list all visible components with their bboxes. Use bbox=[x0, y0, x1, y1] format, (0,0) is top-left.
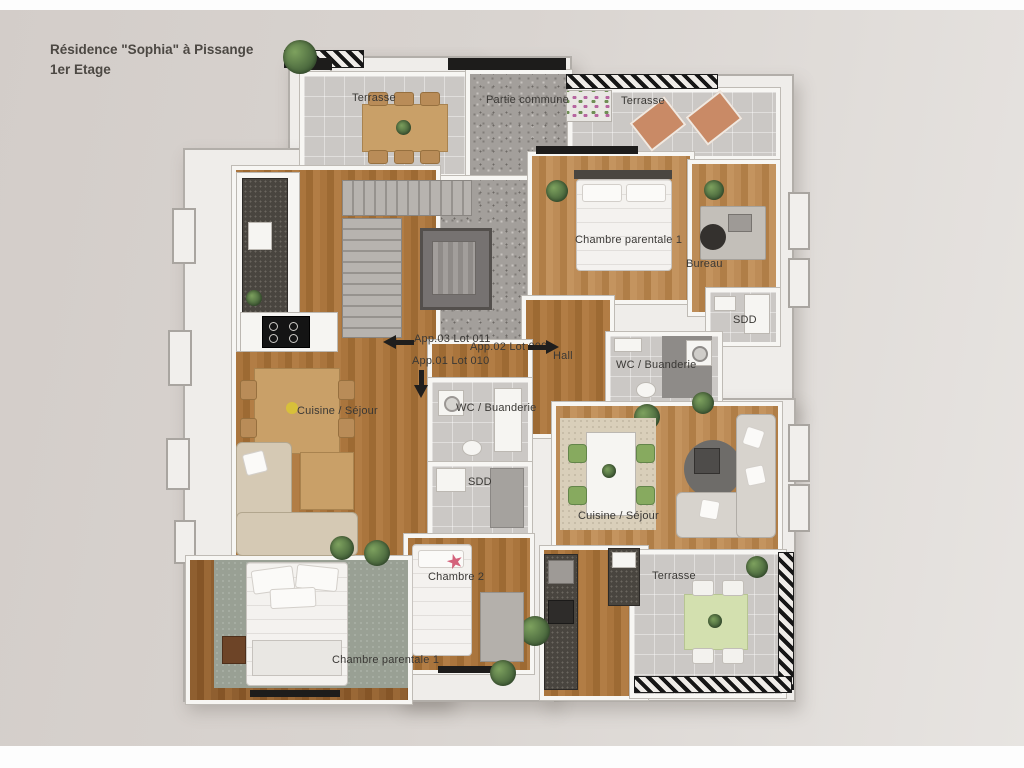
plan-title: Résidence "Sophia" à Pissange 1er Etage bbox=[50, 40, 253, 81]
plant-icon bbox=[246, 290, 262, 306]
right-arrow-icon bbox=[546, 340, 559, 354]
kitchen-sink bbox=[612, 552, 636, 568]
pillow bbox=[270, 587, 317, 609]
terrace-railing-east bbox=[778, 552, 794, 690]
window-band-south-2 bbox=[438, 666, 492, 673]
washbasin bbox=[436, 468, 466, 492]
bed-headboard bbox=[574, 170, 672, 179]
folded-blanket bbox=[252, 640, 342, 676]
label-terrasse-nw: Terrasse bbox=[352, 92, 396, 104]
floor-plan-canvas: Résidence "Sophia" à Pissange 1er Etage bbox=[0, 0, 1024, 768]
washbasin bbox=[714, 296, 736, 311]
stair-flight-lower bbox=[342, 218, 402, 338]
chair bbox=[338, 380, 355, 400]
left-arrow-icon bbox=[383, 335, 396, 349]
chair bbox=[394, 150, 414, 164]
cooktop bbox=[262, 316, 310, 348]
stair-flight-upper bbox=[342, 180, 472, 216]
label-wc-buanderie-left: WC / Buanderie bbox=[456, 402, 536, 414]
burner-icon bbox=[289, 322, 298, 331]
sink bbox=[614, 338, 642, 352]
green-chair bbox=[636, 486, 655, 505]
label-app01: App.01 Lot 010 bbox=[412, 355, 489, 367]
bay-window bbox=[172, 208, 196, 264]
label-bureau: Bureau bbox=[686, 258, 723, 270]
nightstand bbox=[222, 636, 246, 664]
office-chair bbox=[700, 224, 726, 250]
down-arrow-icon bbox=[414, 385, 428, 398]
top-white-strip bbox=[0, 0, 1024, 10]
label-sdd-center: SDD bbox=[468, 476, 492, 488]
toilet bbox=[462, 440, 482, 456]
bay-window bbox=[788, 192, 810, 250]
bay-window bbox=[168, 330, 192, 386]
flower-box bbox=[566, 90, 612, 122]
chair bbox=[420, 92, 440, 106]
plan-title-line1: Résidence "Sophia" à Pissange bbox=[50, 40, 253, 60]
label-cuisine-sejour-right: Cuisine / Séjour bbox=[578, 510, 659, 522]
window-band-top bbox=[448, 58, 566, 70]
right-arrow-icon bbox=[528, 345, 546, 350]
plant-icon bbox=[746, 556, 768, 578]
label-chambre-parentale-left: Chambre parentale 1 bbox=[332, 654, 439, 666]
kitchen-sink-left bbox=[248, 222, 272, 250]
window-band-south bbox=[250, 690, 340, 697]
burner-icon bbox=[269, 322, 278, 331]
pillow bbox=[698, 498, 720, 520]
plant-icon bbox=[364, 540, 390, 566]
laptop bbox=[728, 214, 752, 232]
burner-icon bbox=[289, 334, 298, 343]
label-terrasse-se: Terrasse bbox=[652, 570, 696, 582]
plant-icon bbox=[330, 536, 354, 560]
label-cuisine-sejour-left: Cuisine / Séjour bbox=[297, 405, 378, 417]
plan-title-line2: 1er Etage bbox=[50, 60, 253, 80]
stove-unit bbox=[694, 448, 720, 474]
elevator-shaft bbox=[420, 228, 492, 310]
label-partie-commune: Partie commune bbox=[486, 94, 569, 106]
white-chair bbox=[692, 648, 714, 664]
chair bbox=[240, 418, 257, 438]
plant-icon bbox=[546, 180, 568, 202]
label-terrasse-ne: Terrasse bbox=[621, 95, 665, 107]
chair bbox=[338, 418, 355, 438]
wardrobe bbox=[480, 592, 524, 662]
plant-icon bbox=[520, 616, 550, 646]
bay-window bbox=[788, 424, 810, 482]
label-chambre-2: Chambre 2 bbox=[428, 571, 484, 583]
white-chair bbox=[722, 580, 744, 596]
green-chair bbox=[636, 444, 655, 463]
shower-sdd bbox=[490, 468, 524, 528]
burner-icon bbox=[269, 334, 278, 343]
down-arrow-icon bbox=[419, 370, 424, 385]
bottom-white-strip bbox=[0, 746, 1024, 768]
bay-window bbox=[788, 258, 810, 308]
label-sdd-right: SDD bbox=[733, 314, 757, 326]
plant-icon bbox=[692, 392, 714, 414]
label-wc-buanderie-right: WC / Buanderie bbox=[616, 359, 696, 371]
plant-icon bbox=[708, 614, 722, 628]
green-chair bbox=[568, 444, 587, 463]
green-chair bbox=[568, 486, 587, 505]
plant-icon bbox=[602, 464, 616, 478]
left-arrow-icon bbox=[396, 340, 414, 345]
oven bbox=[548, 600, 574, 624]
pillow bbox=[626, 184, 666, 202]
bath-counter bbox=[494, 388, 522, 452]
chair bbox=[240, 380, 257, 400]
plant-icon bbox=[283, 40, 317, 74]
bay-window bbox=[788, 484, 810, 532]
white-chair bbox=[692, 580, 714, 596]
toilet bbox=[636, 382, 656, 398]
chair bbox=[368, 150, 388, 164]
terrace-railing-south bbox=[634, 676, 792, 693]
pillow bbox=[582, 184, 622, 202]
chair bbox=[394, 92, 414, 106]
label-chambre-parentale-right: Chambre parentale 1 bbox=[575, 234, 682, 246]
plant-icon bbox=[396, 120, 411, 135]
plant-icon bbox=[490, 660, 516, 686]
bay-window bbox=[166, 438, 190, 490]
plant-icon bbox=[704, 180, 724, 200]
coffee-table bbox=[300, 452, 354, 510]
balcony-railing-ne bbox=[566, 74, 718, 89]
chair bbox=[420, 150, 440, 164]
elevator-cab bbox=[432, 241, 476, 295]
white-chair bbox=[722, 648, 744, 664]
kitchen-appliance bbox=[548, 560, 574, 584]
pillow bbox=[744, 464, 767, 487]
window-band-chambre-right bbox=[536, 146, 638, 154]
